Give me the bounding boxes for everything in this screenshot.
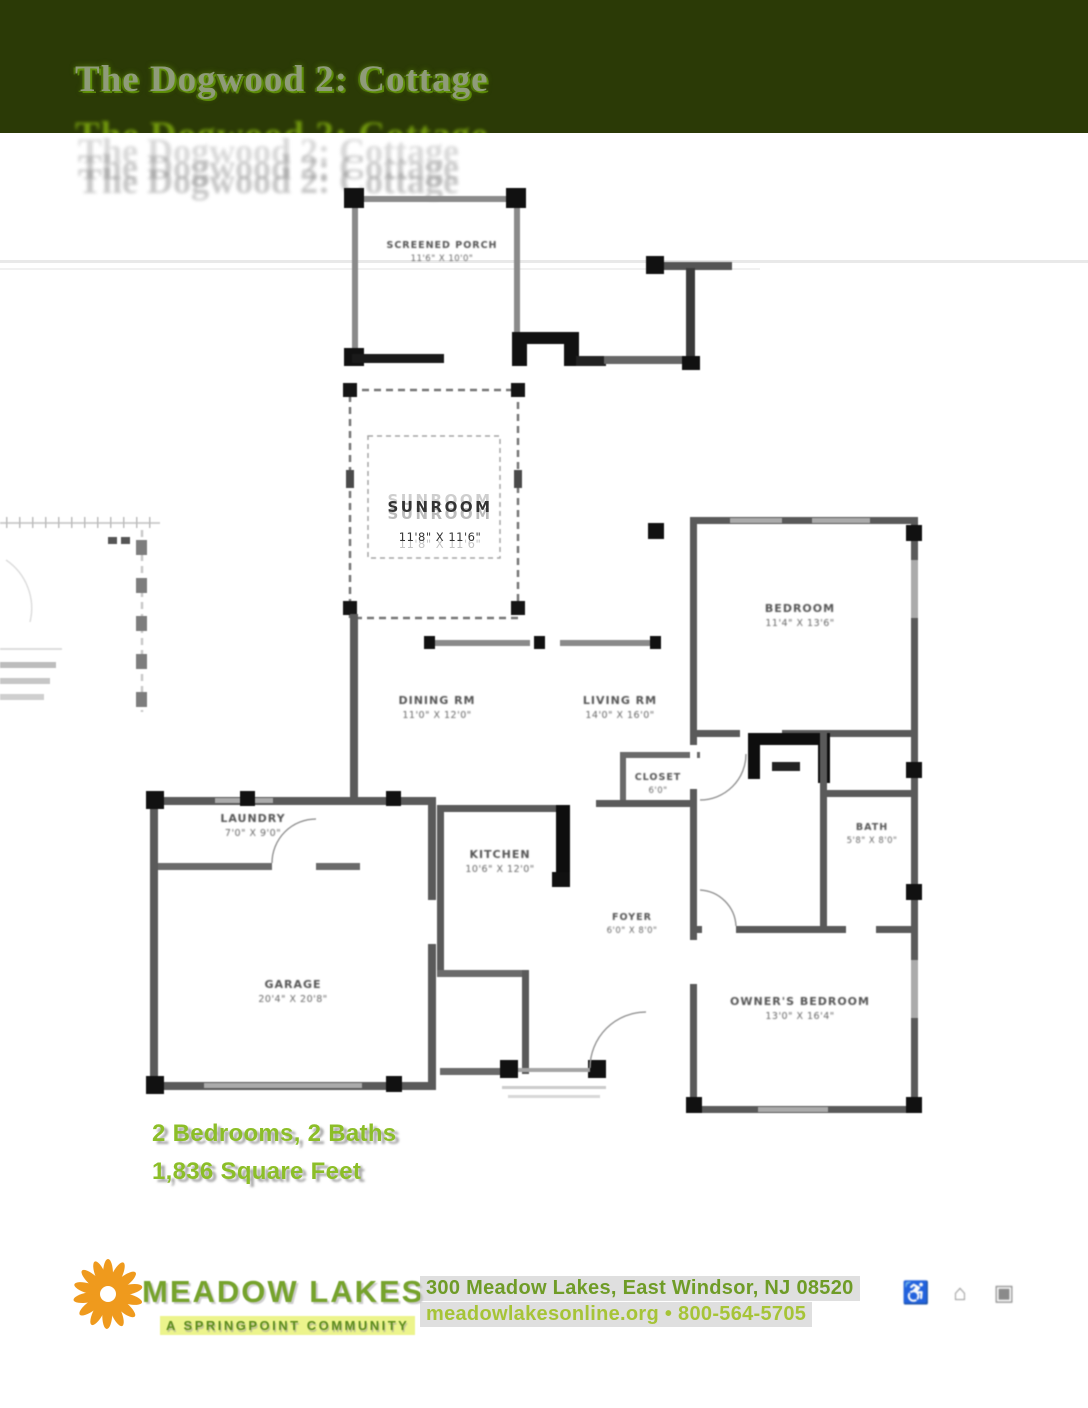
- equal-housing-icon: ⌂: [947, 1280, 973, 1306]
- room-dims: 11'6" X 10'0": [386, 254, 497, 264]
- room-label-sunroom: SUNROOM 11'8" X 11'6": [387, 498, 492, 544]
- room-name: DINING RM: [398, 694, 475, 707]
- room-name: BEDROOM: [765, 602, 835, 615]
- room-dims: 20'4" X 20'8": [258, 994, 327, 1005]
- garage-walls: [146, 791, 436, 1094]
- room-name: KITCHEN: [465, 848, 534, 861]
- room-label-bedroom: BEDROOM 11'4" X 13'6": [765, 602, 835, 629]
- room-dims: 13'0" X 16'4": [730, 1011, 870, 1022]
- room-name: CLOSET: [635, 772, 682, 783]
- room-label-dining-room: DINING RM 11'0" X 12'0": [398, 694, 475, 721]
- room-dims: 11'4" X 13'6": [765, 618, 835, 629]
- room-dims: 6'0": [635, 786, 682, 796]
- plan-stats: 2 Bedrooms, 2 Baths 1,836 Square Feet: [152, 1120, 396, 1196]
- room-label-foyer: FOYER 6'0" X 8'0": [607, 912, 658, 936]
- sunburst-logo-icon: [72, 1258, 144, 1330]
- room-label-living-room: LIVING RM 14'0" X 16'0": [583, 694, 657, 721]
- square-feet-text: 1,836 Square Feet: [152, 1158, 396, 1186]
- room-name: SCREENED PORCH: [386, 240, 497, 251]
- room-name: GARAGE: [258, 978, 327, 991]
- website-phone-text: meadowlakesonline.org • 800-564-5705: [420, 1302, 812, 1327]
- room-name: OWNER'S BEDROOM: [730, 995, 870, 1008]
- room-label-laundry: LAUNDRY 7'0" X 9'0": [220, 812, 285, 839]
- logo-wordmark: MEADOW LAKES: [142, 1274, 424, 1310]
- room-dims: 5'8" X 8'0": [847, 836, 898, 846]
- room-name: SUNROOM: [387, 498, 492, 516]
- rear-wall: [512, 256, 732, 370]
- room-dims: 7'0" X 9'0": [220, 828, 285, 839]
- brochure-page: The Dogwood 2: Cottage The Dogwood 2: Co…: [0, 0, 1088, 1408]
- footer: MEADOW LAKES A SPRINGPOINT COMMUNITY 300…: [0, 1250, 1088, 1370]
- room-dims: 10'6" X 12'0": [465, 864, 534, 875]
- footer-icons: ♿ ⌂ ▣: [903, 1280, 1017, 1306]
- room-dims: 11'0" X 12'0": [398, 710, 475, 721]
- left-edge-fragment: [0, 517, 160, 712]
- logo-tagline: A SPRINGPOINT COMMUNITY: [160, 1316, 415, 1335]
- owners-bedroom-walls: [686, 1097, 922, 1113]
- room-label-bath: BATH 5'8" X 8'0": [847, 822, 898, 846]
- bedrooms-baths-text: 2 Bedrooms, 2 Baths: [152, 1120, 396, 1148]
- room-label-garage: GARAGE 20'4" X 20'8": [258, 978, 327, 1005]
- room-label-screened-porch: SCREENED PORCH 11'6" X 10'0": [386, 240, 497, 264]
- wheelchair-accessible-icon: ♿: [903, 1280, 929, 1306]
- floor-plan-drawing: [0, 0, 1088, 1408]
- room-name: LAUNDRY: [220, 812, 285, 825]
- room-name: FOYER: [607, 912, 658, 923]
- room-dims: 6'0" X 8'0": [607, 926, 658, 936]
- accreditation-icon: ▣: [991, 1280, 1017, 1306]
- room-name: LIVING RM: [583, 694, 657, 707]
- room-dims: 11'8" X 11'6": [387, 530, 492, 544]
- room-dims: 14'0" X 16'0": [583, 710, 657, 721]
- room-label-owners-bedroom: OWNER'S BEDROOM 13'0" X 16'4": [730, 995, 870, 1022]
- screened-porch-walls: [344, 188, 526, 366]
- address-text: 300 Meadow Lakes, East Windsor, NJ 08520: [420, 1276, 860, 1301]
- room-name: BATH: [847, 822, 898, 833]
- room-label-kitchen: KITCHEN 10'6" X 12'0": [465, 848, 534, 875]
- room-label-closet: CLOSET 6'0": [635, 772, 682, 796]
